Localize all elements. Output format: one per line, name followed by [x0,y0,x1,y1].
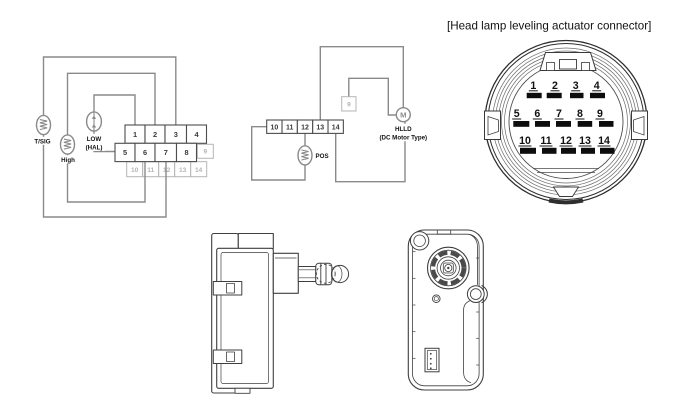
face-pin-2: 2 [552,80,558,92]
face-pin-5: 5 [514,108,520,120]
left-pin-9: 9 [203,149,207,156]
position-bulb-icon [298,146,312,165]
middle-pin-14: 14 [332,124,340,131]
middle-wiring-diagram: 9 POS M HLLD (DC Motor Type) 10 11 12 13… [252,47,433,182]
middle-pin-11: 11 [286,124,294,131]
motor-dome-icon [428,247,470,289]
actuator-connector-face: 1 2 3 4 5 6 7 8 9 [485,41,648,203]
high-label: High [61,157,75,164]
side-boss-icon [467,286,484,303]
low-label-line2: (HAL) [86,145,103,152]
middle-pin-13: 13 [316,124,324,131]
actuator-side-view [212,234,349,394]
left-pin-10: 10 [131,167,139,174]
face-pin-13: 13 [579,135,591,147]
low-label-line1: LOW [87,136,102,143]
screw-boss-icon [433,295,441,303]
face-pin-12: 12 [560,135,572,147]
left-pin-14: 14 [195,167,203,174]
face-pin-10: 10 [519,135,531,147]
low-beam-bulb-icon [87,112,102,131]
middle-pin-9: 9 [347,102,351,109]
left-pin-13: 13 [179,167,187,174]
tsig-label: T/SIG [34,139,50,146]
high-beam-bulb-icon [61,135,75,154]
face-pin-9: 9 [597,108,603,120]
face-pin-11: 11 [540,135,551,147]
face-pin-7: 7 [556,108,562,120]
left-pin-7: 7 [164,148,168,157]
left-pin-3: 3 [174,130,178,139]
left-pin-6: 6 [143,148,147,157]
pivot-boss-icon [410,232,428,250]
left-pin-1: 1 [133,130,137,139]
connector-key-top [540,53,596,71]
mounting-slot-upper [213,282,242,296]
face-pin-1: 1 [530,80,536,92]
middle-pin-12: 12 [301,124,309,131]
pos-label: POS [316,153,329,160]
connector-socket-icon [425,348,439,372]
left-pin-2: 2 [153,130,157,139]
face-pin-3: 3 [573,80,579,92]
mounting-slot-lower [213,350,242,364]
motor-symbol: M [400,111,406,120]
connector-key-right [632,111,648,140]
motor-sublabel: (DC Motor Type) [379,135,427,142]
middle-pin-row: 10 11 12 13 14 [267,120,344,133]
face-pin-14: 14 [598,135,610,147]
left-pin-12: 12 [163,167,171,174]
connector-key-bottom [549,187,583,202]
diagram-canvas: 10 11 12 13 14 9 1 [0,0,700,413]
connector-key-left [485,111,501,140]
middle-wires [252,47,405,182]
actuator-front-view [408,230,487,390]
left-pin-11: 11 [147,167,154,174]
face-pin-8: 8 [577,108,583,120]
actuator-shaft [273,253,348,293]
motor-label: HLLD [395,126,412,133]
service-manual-diagram-page: 10 11 12 13 14 9 1 [0,0,700,413]
face-pin-6: 6 [534,108,540,120]
left-pin-8: 8 [184,148,188,157]
turn-signal-bulb-icon [37,115,51,134]
face-pin-4: 4 [594,80,600,92]
left-wiring-diagram: 10 11 12 13 14 9 1 [30,57,214,217]
middle-pin-10: 10 [271,124,279,131]
left-pin-5: 5 [123,148,127,157]
left-active-pin-grid: 1 2 3 4 5 6 7 8 [115,125,207,162]
connector-title: [Head lamp leveling actuator connector] [447,20,651,33]
